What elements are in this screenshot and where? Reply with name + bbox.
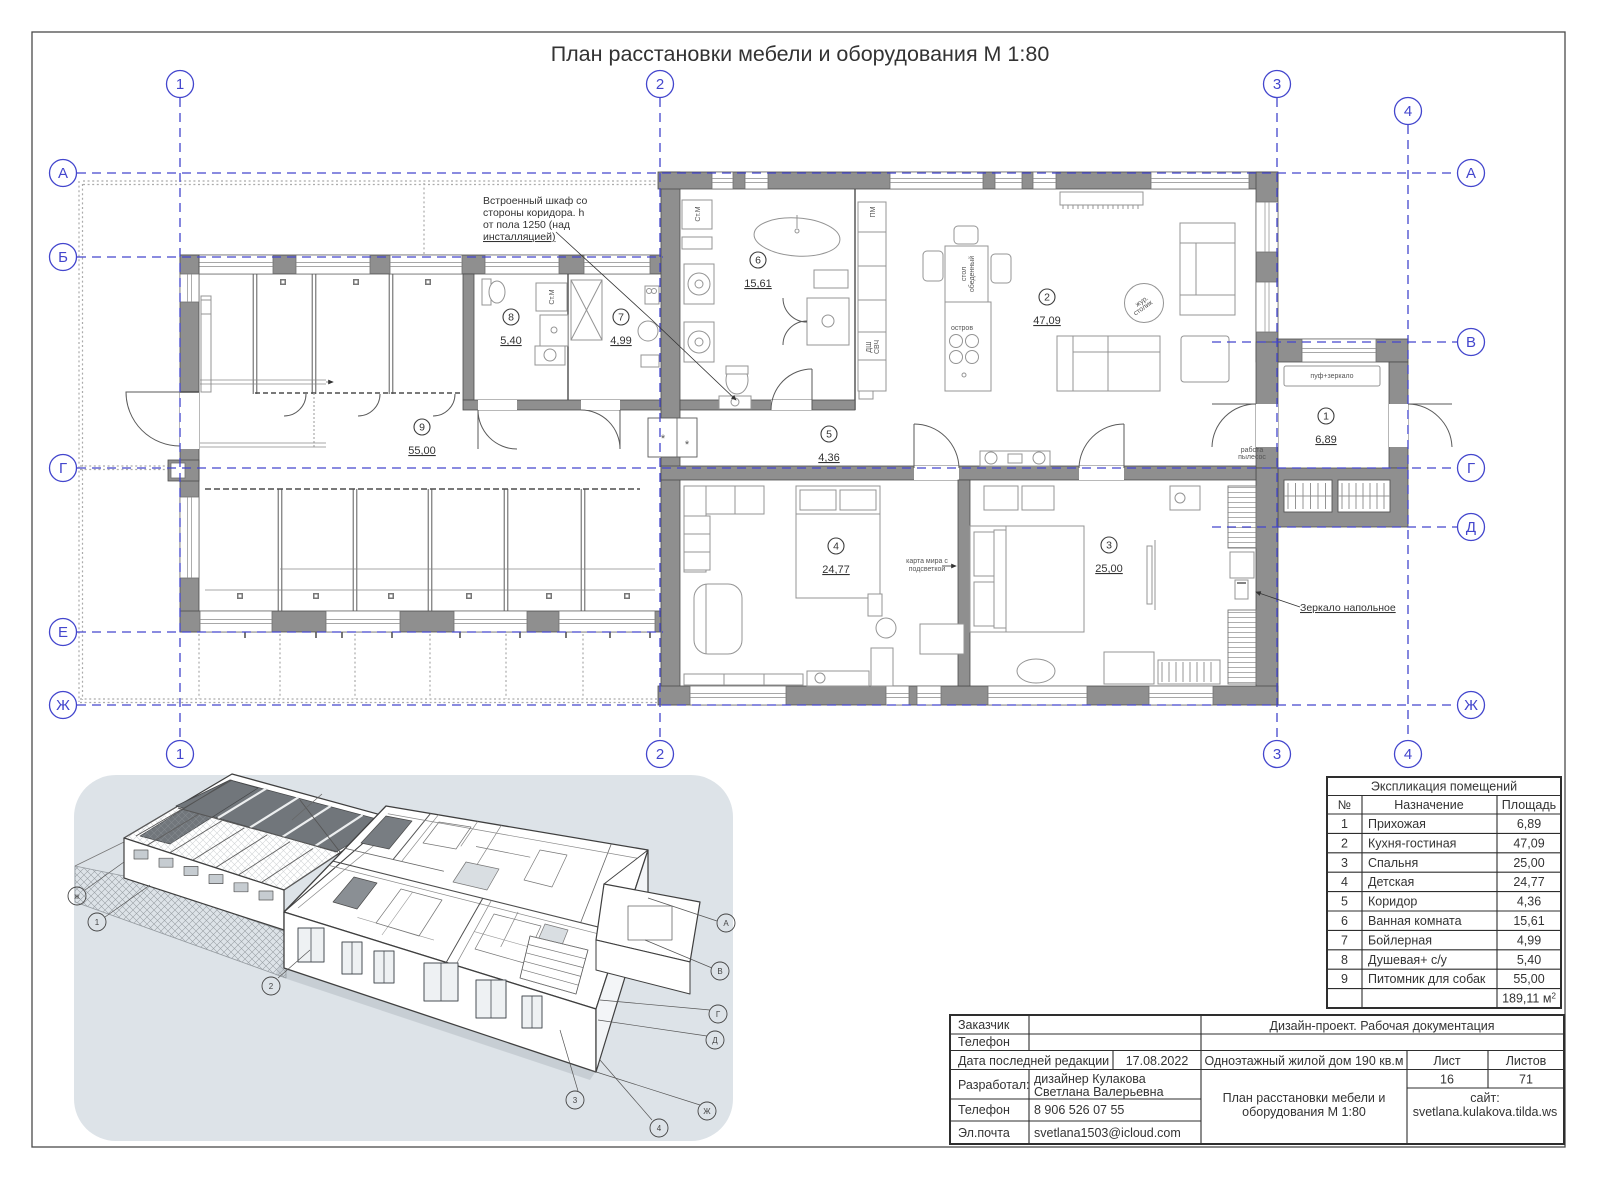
svg-text:15,61: 15,61 — [744, 278, 772, 290]
svg-text:3: 3 — [1273, 746, 1281, 763]
svg-text:4: 4 — [1341, 875, 1348, 889]
svg-text:3: 3 — [1273, 76, 1281, 93]
svg-text:3: 3 — [573, 1096, 578, 1105]
svg-text:1: 1 — [1341, 817, 1348, 831]
svg-text:сайт:: сайт: — [1470, 1091, 1499, 1105]
svg-text:остров: остров — [951, 325, 973, 332]
svg-text:17.08.2022: 17.08.2022 — [1126, 1054, 1189, 1068]
svg-text:4: 4 — [1404, 103, 1412, 120]
svg-text:Д: Д — [712, 1036, 718, 1045]
svg-text:6,89: 6,89 — [1517, 817, 1541, 831]
svg-text:2: 2 — [656, 76, 664, 93]
svg-text:1: 1 — [95, 918, 100, 927]
svg-text:5: 5 — [826, 429, 832, 441]
svg-text:обеденный: обеденный — [968, 256, 976, 292]
svg-text:8: 8 — [508, 312, 514, 324]
svg-text:3: 3 — [1341, 856, 1348, 870]
svg-text:Лист: Лист — [1433, 1054, 1460, 1068]
svg-text:Прихожая: Прихожая — [1368, 817, 1426, 831]
svg-text:Эл.почта: Эл.почта — [958, 1126, 1010, 1140]
svg-text:Одноэтажный жилой дом 190 кв.м: Одноэтажный жилой дом 190 кв.м — [1205, 1054, 1404, 1068]
svg-text:Телефон: Телефон — [958, 1035, 1010, 1049]
svg-text:от пола 1250 (над: от пола 1250 (над — [483, 219, 570, 231]
svg-text:6: 6 — [755, 255, 761, 267]
svg-text:9: 9 — [419, 422, 425, 434]
svg-text:2: 2 — [1044, 292, 1050, 304]
svg-text:А: А — [58, 165, 68, 182]
svg-text:15,61: 15,61 — [1513, 914, 1544, 928]
svg-text:Назначение: Назначение — [1394, 798, 1464, 812]
svg-text:В: В — [1466, 334, 1476, 351]
svg-text:стороны коридора. h: стороны коридора. h — [483, 207, 584, 219]
svg-text:5: 5 — [1341, 895, 1348, 909]
svg-text:Г: Г — [1467, 460, 1475, 477]
svg-text:Ж: Ж — [703, 1107, 711, 1116]
svg-text:3: 3 — [1106, 540, 1112, 552]
svg-text:24,77: 24,77 — [822, 564, 850, 576]
svg-text:55,00: 55,00 — [408, 445, 436, 457]
svg-text:ПМ: ПМ — [870, 206, 877, 217]
svg-text:25,00: 25,00 — [1095, 563, 1123, 575]
svg-text:7: 7 — [618, 312, 624, 324]
svg-text:дизайнер Кулакова: дизайнер Кулакова — [1034, 1072, 1146, 1086]
svg-text:ДШ: ДШ — [866, 341, 873, 352]
svg-text:*: * — [661, 433, 666, 445]
svg-text:5,40: 5,40 — [500, 335, 521, 347]
svg-text:План расстановки мебели и обор: План расстановки мебели и оборудования М… — [551, 42, 1050, 66]
svg-text:Г: Г — [716, 1010, 721, 1019]
svg-text:25,00: 25,00 — [1513, 856, 1544, 870]
svg-text:4,36: 4,36 — [818, 452, 839, 464]
svg-text:8 906 526 07 55: 8 906 526 07 55 — [1034, 1103, 1124, 1117]
svg-text:1: 1 — [176, 76, 184, 93]
svg-text:16: 16 — [1440, 1073, 1454, 1087]
svg-text:1: 1 — [1323, 411, 1329, 423]
svg-text:пуф+зеркало: пуф+зеркало — [1310, 373, 1353, 380]
svg-text:Е: Е — [58, 624, 68, 641]
svg-text:карта мира с: карта мира с — [906, 558, 948, 565]
svg-text:Площадь: Площадь — [1502, 798, 1556, 812]
svg-text:Бойлерная: Бойлерная — [1368, 933, 1432, 947]
svg-text:4,99: 4,99 — [610, 335, 631, 347]
svg-text:А: А — [1466, 165, 1476, 182]
svg-text:инсталляцией): инсталляцией) — [483, 231, 555, 243]
svg-text:2: 2 — [1341, 836, 1348, 850]
svg-text:2: 2 — [269, 982, 274, 991]
svg-text:47,09: 47,09 — [1033, 315, 1061, 327]
svg-text:8: 8 — [1341, 953, 1348, 967]
svg-text:Г: Г — [59, 460, 67, 477]
svg-text:9: 9 — [1341, 972, 1348, 986]
svg-text:Ванная комната: Ванная комната — [1368, 914, 1462, 928]
svg-text:*: * — [685, 439, 690, 451]
svg-text:подсветкой: подсветкой — [909, 565, 946, 573]
svg-text:Б: Б — [58, 249, 68, 266]
svg-text:работа: работа — [1241, 446, 1264, 454]
svg-text:Детская: Детская — [1368, 875, 1414, 889]
svg-text:Д: Д — [1466, 519, 1476, 536]
svg-text:6: 6 — [1341, 914, 1348, 928]
svg-text:Дизайн-проект. Рабочая докумен: Дизайн-проект. Рабочая документация — [1270, 1019, 1495, 1033]
svg-text:№: № — [1338, 798, 1351, 812]
svg-text:189,11 м2: 189,11 м2 — [1502, 992, 1556, 1006]
svg-text:Коридор: Коридор — [1368, 895, 1417, 909]
svg-text:А: А — [723, 919, 729, 928]
svg-text:Экспликация помещений: Экспликация помещений — [1371, 780, 1517, 794]
svg-text:Дата последней редакции: Дата последней редакции — [958, 1054, 1109, 1068]
svg-text:47,09: 47,09 — [1513, 836, 1544, 850]
svg-text:Телефон: Телефон — [958, 1103, 1010, 1117]
svg-text:1: 1 — [176, 746, 184, 763]
svg-text:В: В — [717, 967, 722, 976]
svg-text:2: 2 — [656, 746, 664, 763]
svg-text:Ст.М: Ст.М — [549, 289, 556, 304]
svg-text:Душевая+ с/у: Душевая+ с/у — [1368, 953, 1448, 967]
svg-text:План расстановки мебели и: План расстановки мебели и — [1223, 1091, 1386, 1105]
svg-text:Разработал:: Разработал: — [958, 1078, 1030, 1092]
svg-text:svetlana1503@icloud.com: svetlana1503@icloud.com — [1034, 1126, 1181, 1140]
svg-text:ж: ж — [74, 892, 80, 901]
svg-text:Листов: Листов — [1506, 1054, 1547, 1068]
svg-text:5,40: 5,40 — [1517, 953, 1541, 967]
svg-text:стол: стол — [961, 267, 968, 281]
svg-text:Спальня: Спальня — [1368, 856, 1418, 870]
svg-text:Питомник для собак: Питомник для собак — [1368, 972, 1486, 986]
svg-text:Ст.М: Ст.М — [695, 206, 702, 221]
svg-text:4: 4 — [657, 1124, 662, 1133]
svg-text:Встроенный шкаф со: Встроенный шкаф со — [483, 195, 588, 207]
svg-text:Кухня-гостиная: Кухня-гостиная — [1368, 836, 1456, 850]
svg-text:55,00: 55,00 — [1513, 972, 1544, 986]
svg-text:СВЧ: СВЧ — [874, 340, 881, 354]
svg-text:Ж: Ж — [1464, 697, 1478, 714]
svg-text:4: 4 — [833, 541, 839, 553]
svg-text:7: 7 — [1341, 933, 1348, 947]
svg-text:оборудования М 1:80: оборудования М 1:80 — [1242, 1105, 1366, 1119]
svg-text:пылесос: пылесос — [1238, 454, 1266, 461]
svg-text:Светлана Валерьевна: Светлана Валерьевна — [1034, 1085, 1164, 1099]
svg-text:6,89: 6,89 — [1315, 434, 1336, 446]
svg-text:71: 71 — [1519, 1073, 1533, 1087]
svg-text:Зеркало напольное: Зеркало напольное — [1300, 602, 1396, 614]
svg-text:4: 4 — [1404, 746, 1412, 763]
svg-text:4,99: 4,99 — [1517, 933, 1541, 947]
svg-text:Заказчик: Заказчик — [958, 1018, 1010, 1032]
svg-text:svetlana.kulakova.tilda.ws: svetlana.kulakova.tilda.ws — [1413, 1105, 1558, 1119]
svg-text:24,77: 24,77 — [1513, 875, 1544, 889]
svg-text:Ж: Ж — [56, 697, 70, 714]
svg-text:4,36: 4,36 — [1517, 895, 1541, 909]
